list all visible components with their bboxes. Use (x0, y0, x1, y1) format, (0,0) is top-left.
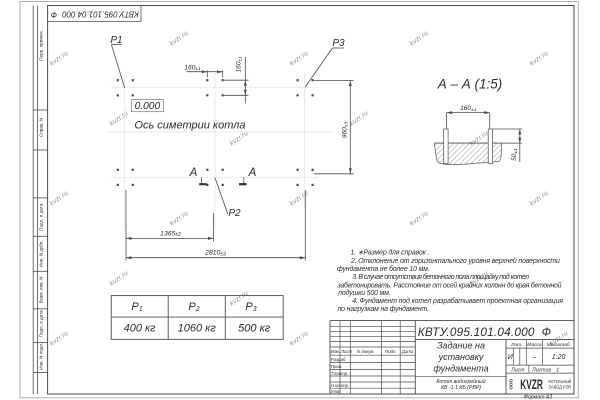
svg-text:Масса: Масса (527, 342, 542, 348)
svg-text:2810±3: 2810±3 (204, 250, 226, 258)
svg-text:подушки 500 мм.: подушки 500 мм. (338, 289, 391, 297)
svg-text:по нагрузкам на фундамент.: по нагрузкам на фундамент. (338, 305, 430, 313)
svg-text:Изм.: Изм. (331, 349, 340, 354)
svg-text:КВТУ.095.101.04.000Ф: КВТУ.095.101.04.000Ф (418, 325, 552, 339)
svg-text:kvzr.ru: kvzr.ru (349, 110, 370, 128)
svg-text:kvzr.ru: kvzr.ru (529, 50, 550, 68)
svg-text:Т.контр.: Т.контр. (331, 371, 349, 376)
svg-text:KVZR: KVZR (520, 376, 543, 392)
svg-text:А – А (1:5): А – А (1:5) (437, 77, 503, 92)
svg-text:N докум.: N докум. (357, 349, 375, 354)
svg-text:ООО: ООО (509, 379, 514, 390)
svg-text:Разраб.: Разраб. (331, 357, 347, 362)
svg-text:50±1: 50±1 (511, 148, 519, 161)
svg-text:Задание на: Задание на (437, 341, 485, 351)
svg-text:Р2: Р2 (228, 208, 241, 219)
svg-text:kvzr.ru: kvzr.ru (289, 50, 310, 68)
svg-text:Справ. N: Справ. N (39, 118, 44, 137)
svg-text:Лист: Лист (510, 367, 525, 373)
svg-text:Подп. и дата: Подп. и дата (39, 310, 44, 338)
svg-text:Масштаб: Масштаб (547, 342, 570, 348)
svg-text:Перв. примен.: Перв. примен. (39, 30, 44, 61)
svg-text:Р2: Р2 (188, 301, 199, 313)
svg-text:Утв.: Утв. (331, 389, 341, 394)
svg-text:А: А (189, 167, 198, 179)
svg-text:500 кг: 500 кг (238, 323, 271, 335)
svg-text:kvzr.ru: kvzr.ru (49, 330, 70, 348)
svg-text:kvzr.ru: kvzr.ru (409, 30, 430, 48)
svg-text:фундамента не более 10 мм.: фундамента не более 10 мм. (337, 265, 430, 273)
svg-text:kvzr.ru: kvzr.ru (49, 50, 70, 68)
svg-text:Котел водогрейный: Котел водогрейный (436, 378, 485, 385)
svg-text:160±1: 160±1 (236, 56, 244, 73)
svg-text:kvzr.ru: kvzr.ru (49, 190, 70, 208)
svg-text:Подп. и дата: Подп. и дата (39, 203, 44, 231)
svg-text:4. Фундамент под котел разраб: 4. Фундамент под котел разрабатывает про… (352, 297, 563, 305)
svg-text:kvzr.ru: kvzr.ru (169, 210, 190, 228)
svg-text:КВ -1,1 КБ (РВР): КВ -1,1 КБ (РВР) (441, 385, 481, 391)
svg-text:kvzr.ru: kvzr.ru (169, 30, 190, 48)
svg-text:–: – (531, 354, 536, 361)
svg-text:400 кг: 400 кг (124, 323, 157, 335)
svg-text:Дата: Дата (401, 349, 414, 354)
svg-text:kvzr.ru: kvzr.ru (529, 190, 550, 208)
svg-text:Н.контр.: Н.контр. (331, 383, 350, 388)
svg-text:Подп.: Подп. (385, 349, 397, 354)
svg-text:фундамента: фундамента (433, 364, 488, 374)
svg-text:kvzr.ru: kvzr.ru (289, 330, 310, 348)
svg-text:1. ∗Размер для справок .: 1. ∗Размер для справок . (351, 249, 430, 257)
svg-text:kvzr.ru: kvzr.ru (229, 130, 250, 148)
svg-text:1:20: 1:20 (552, 354, 566, 361)
svg-text:kvzr.ru: kvzr.ru (289, 190, 310, 208)
svg-text:КВТУ.095.101.04.000Ф: КВТУ.095.101.04.000Ф (50, 10, 139, 19)
svg-text:kvzr.ru: kvzr.ru (409, 210, 430, 228)
svg-text:Ось симетрии котла: Ось симетрии котла (134, 119, 245, 131)
svg-text:Взам. инв. N: Взам. инв. N (39, 277, 44, 304)
svg-text:ЗАВОД РЭП: ЗАВОД РЭП (549, 385, 572, 390)
svg-text:3. В случае отсутствия бетонн: 3. В случае отсутствия бетонного пола пл… (352, 273, 529, 281)
svg-text:Пров.: Пров. (331, 364, 343, 369)
svg-text:Инв. N подл.: Инв. N подл. (39, 343, 44, 370)
svg-text:Лит.: Лит. (510, 342, 522, 348)
svg-text:0.000: 0.000 (135, 101, 161, 112)
svg-text:забетонировать. Расстояние от: забетонировать. Расстояние от осей крайн… (337, 281, 562, 289)
svg-text:Р1: Р1 (131, 301, 142, 313)
svg-text:Инв. N дубл.: Инв. N дубл. (39, 240, 44, 267)
svg-text:Листов: Листов (531, 367, 551, 373)
svg-text:установку: установку (438, 352, 484, 362)
svg-text:Р3: Р3 (245, 301, 256, 313)
svg-text:1365±2: 1365±2 (160, 230, 181, 238)
svg-text:КОТЕЛЬНЫЙ: КОТЕЛЬНЫЙ (549, 379, 572, 384)
svg-text:Р3: Р3 (332, 38, 345, 49)
svg-text:1060 кг: 1060 кг (178, 323, 217, 335)
svg-text:960±3: 960±3 (342, 122, 350, 139)
svg-text:И: И (508, 354, 514, 361)
svg-text:160±1: 160±1 (184, 64, 201, 72)
svg-text:kvzr.ru: kvzr.ru (109, 110, 130, 128)
svg-text:160±1: 160±1 (460, 105, 477, 113)
svg-text:2. Отклонение от горизонтальн: 2. Отклонение от горизонтального уровня … (350, 257, 560, 265)
svg-text:А: А (248, 167, 257, 179)
svg-text:kvzr.ru: kvzr.ru (109, 270, 130, 288)
svg-text:1: 1 (556, 367, 559, 373)
svg-text:Формат А3: Формат А3 (524, 394, 552, 400)
svg-text:Лист: Лист (340, 349, 353, 354)
